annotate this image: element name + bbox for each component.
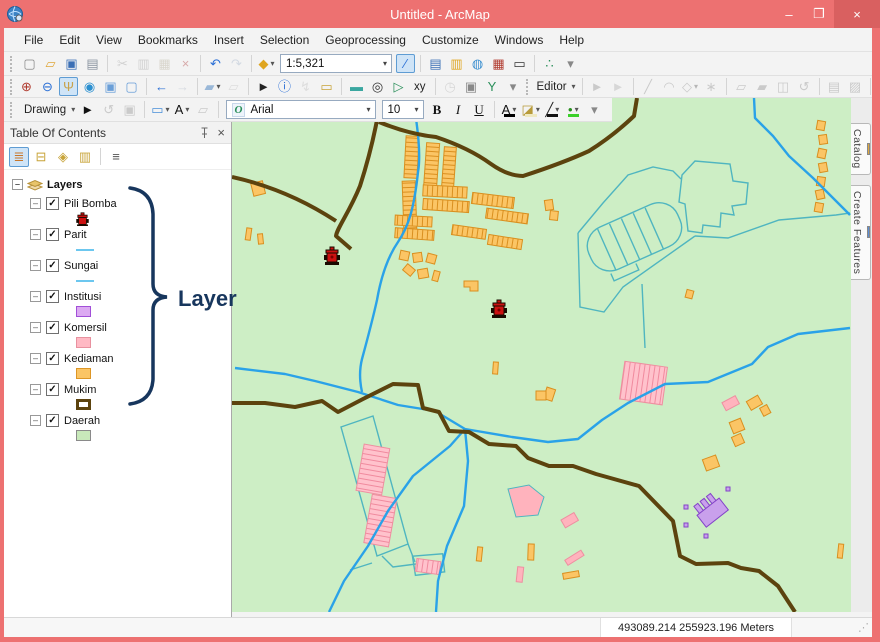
layer-symbol-parit — [76, 243, 231, 256]
toolbar-separator — [870, 78, 871, 95]
font-family-combo[interactable]: O Arial ▾ — [226, 100, 376, 119]
select-elements-tool-button[interactable]: ► — [78, 100, 97, 119]
html-popup-button[interactable]: ▭ — [317, 77, 336, 96]
table-of-contents-window-button[interactable]: ▤ — [426, 54, 445, 73]
marker-color-button[interactable]: •▾ — [564, 100, 583, 119]
modelbuilder-button[interactable]: ∴ — [540, 54, 559, 73]
go-back-extent-button[interactable]: ← — [152, 77, 171, 96]
layer-item-sungai: –✓Sungai — [30, 259, 231, 290]
chevron-down-icon: ▾ — [166, 105, 170, 114]
cut-polygons-button[interactable]: ◫ — [774, 77, 793, 96]
line-color-button[interactable]: ╱▾ — [543, 100, 562, 119]
toolbar-separator — [435, 78, 436, 95]
arcmap-window: Untitled - ArcMap – ❐ × FileEditViewBook… — [0, 0, 880, 642]
toolbar-separator — [582, 78, 583, 95]
toc-tree: – Layers –✓Pili Bomba–✓Parit–✓Sungai–✓In… — [4, 170, 231, 445]
expander-icon[interactable]: – — [30, 384, 41, 395]
side-tab-label: Catalog — [851, 129, 863, 169]
expander-icon[interactable]: – — [12, 179, 23, 190]
layer-symbol-daerah — [76, 429, 231, 442]
font-symbol-icon: O — [232, 103, 246, 117]
minimize-button[interactable]: – — [774, 0, 804, 28]
find-button[interactable]: ◎ — [368, 77, 387, 96]
color-swatch — [568, 114, 579, 117]
chevron-down-icon: ▾ — [411, 105, 423, 114]
redo-button[interactable]: ↷ — [227, 54, 246, 73]
layer-label[interactable]: Pili Bomba — [64, 198, 117, 210]
toolbar-grip[interactable] — [10, 102, 15, 118]
menu-view[interactable]: View — [88, 30, 130, 50]
layer-item-mukim: –✓Mukim — [30, 383, 231, 414]
new-text-button[interactable]: A▾ — [173, 100, 192, 119]
undo-button[interactable]: ↶ — [206, 54, 225, 73]
layer-label[interactable]: Sungai — [64, 260, 98, 272]
fill-color-button[interactable]: ◪▾ — [521, 100, 541, 119]
layers-list: –✓Pili Bomba–✓Parit–✓Sungai–✓Institusi–✓… — [30, 197, 231, 445]
window-title: Untitled - ArcMap — [0, 7, 880, 22]
new-rectangle-button[interactable]: ▭▾ — [150, 100, 170, 119]
layer-checkbox[interactable]: ✓ — [46, 259, 59, 272]
layer-item-pili-bomba: –✓Pili Bomba — [30, 197, 231, 228]
menu-geoprocessing[interactable]: Geoprocessing — [317, 30, 414, 50]
expander-icon[interactable]: – — [30, 415, 41, 426]
expander-icon[interactable]: – — [30, 229, 41, 240]
toolbar-separator — [251, 55, 252, 72]
drawing-overflow-button[interactable]: ▾ — [585, 100, 604, 119]
layer-label[interactable]: Kediaman — [64, 353, 114, 365]
menu-windows[interactable]: Windows — [487, 30, 552, 50]
toolbar-separator — [197, 78, 198, 95]
layer-checkbox[interactable]: ✓ — [46, 228, 59, 241]
menu-edit[interactable]: Edit — [51, 30, 88, 50]
layer-label[interactable]: Parit — [64, 229, 87, 241]
drawing-menu-button[interactable]: Drawing▾ — [20, 100, 76, 119]
standard-toolbar: ▢▱▣▤✂▥▦×↶↷◆▾ 1:5,321 ▾ ∕▤▥◍▦▭∴▾ — [4, 52, 872, 76]
layer-symbol-institusi — [76, 305, 231, 318]
layer-symbol-mukim — [76, 398, 231, 411]
map-scale-combo[interactable]: 1:5,321 ▾ — [280, 54, 392, 73]
bold-button[interactable]: B — [428, 100, 447, 119]
fire-hydrant-symbol — [491, 300, 507, 318]
toolbar-separator — [218, 101, 219, 118]
layer-label[interactable]: Komersil — [64, 322, 107, 334]
side-tab-create-features[interactable]: Create Features — [851, 185, 871, 280]
resize-grip[interactable]: ⋰ — [858, 621, 872, 634]
table-of-contents-panel: Table Of Contents × ≣⊟◈▥≡ – Layers –✓Pil… — [4, 122, 232, 617]
layer-label[interactable]: Daerah — [64, 415, 100, 427]
chevron-down-icon: ▾ — [379, 59, 391, 68]
zoom-in-button[interactable]: ⊕ — [17, 77, 36, 96]
measure-button[interactable]: ▬ — [347, 77, 366, 96]
layer-checkbox[interactable]: ✓ — [46, 321, 59, 334]
right-tab-strip: CatalogCreate Features — [851, 98, 872, 612]
rotate-element-button[interactable]: ↺ — [99, 100, 118, 119]
color-swatch — [547, 114, 558, 117]
toolbar-separator — [100, 148, 101, 165]
save-button[interactable]: ▣ — [62, 54, 81, 73]
layer-checkbox[interactable]: ✓ — [46, 414, 59, 427]
data-frame-icon — [27, 178, 43, 191]
zoom-out-button[interactable]: ⊖ — [38, 77, 57, 96]
time-slider-button[interactable]: ◷ — [441, 77, 460, 96]
select-elements-button[interactable]: ► — [254, 77, 273, 96]
font-family-value: Arial — [250, 104, 273, 116]
edit-tool-button[interactable]: ► — [588, 77, 607, 96]
toolbar-separator — [726, 78, 727, 95]
chevron-down-icon: ▾ — [575, 105, 579, 114]
hyperlink-button[interactable]: ↯ — [296, 77, 315, 96]
menu-help[interactable]: Help — [551, 30, 592, 50]
pin-icon[interactable] — [200, 127, 209, 139]
chevron-down-icon: ▾ — [216, 82, 220, 91]
color-swatch — [504, 114, 515, 117]
edit-vertices-button[interactable]: ▱ — [732, 77, 751, 96]
tools-toolbar: ⊕⊖Ψ◉▣▢←→▰▾▱►ⓘ↯▭▬◎▷xy◷▣Y▾ Editor▾►►╱◠◇▾∗▱… — [4, 76, 872, 98]
arctoolbox-window-button[interactable]: ▦ — [489, 54, 508, 73]
select-features-button[interactable]: ▰▾ — [203, 77, 222, 96]
expander-icon[interactable]: – — [30, 260, 41, 271]
reshape-feature-button[interactable]: ▰ — [753, 77, 772, 96]
toolbar-separator — [494, 101, 495, 118]
cut-button[interactable]: ✂ — [113, 54, 132, 73]
toolbar-separator — [633, 78, 634, 95]
edit-annotation-tool-button[interactable]: ► — [609, 77, 628, 96]
map-canvas[interactable] — [232, 98, 851, 612]
title-bar: Untitled - ArcMap – ❐ × — [0, 0, 880, 28]
menu-customize[interactable]: Customize — [414, 30, 487, 50]
list-by-source-button[interactable]: ⊟ — [31, 147, 51, 167]
rotate-tool-button[interactable]: ↺ — [795, 77, 814, 96]
list-by-drawing-order-button[interactable]: ≣ — [9, 147, 29, 167]
expander-icon[interactable]: – — [30, 353, 41, 364]
chevron-down-icon: ▾ — [536, 105, 540, 114]
layer-item-parit: –✓Parit — [30, 228, 231, 259]
python-window-button[interactable]: ▭ — [510, 54, 529, 73]
toolbar-grip[interactable] — [10, 56, 15, 72]
window-border-bottom — [0, 637, 880, 642]
point-button[interactable]: ∗ — [702, 77, 721, 96]
viewer-window-button[interactable]: ▣ — [462, 77, 481, 96]
maximize-button[interactable]: ❐ — [804, 0, 834, 28]
expander-icon[interactable]: – — [30, 198, 41, 209]
layer-checkbox[interactable]: ✓ — [46, 352, 59, 365]
layer-item-institusi: –✓Institusi — [30, 290, 231, 321]
toolbar-separator — [248, 78, 249, 95]
new-map-button[interactable]: ▢ — [20, 54, 39, 73]
chevron-down-icon: ▾ — [185, 105, 189, 114]
daerah-district-polygon — [232, 98, 851, 612]
menu-file[interactable]: File — [16, 30, 51, 50]
side-tab-label: Create Features — [851, 191, 863, 274]
toolbar-grip[interactable] — [526, 79, 528, 95]
drawing-toolbar: Drawing▾►↺▣▭▾A▾▱ O Arial ▾ 10 ▾ BIUA▾◪▾╱… — [4, 98, 612, 122]
expander-icon[interactable]: – — [30, 322, 41, 333]
side-tab-catalog-icon — [867, 143, 870, 155]
layer-symbol-pili-bomba — [76, 212, 231, 225]
fire-hydrant-symbol — [324, 247, 340, 265]
chevron-down-icon: ▾ — [555, 105, 559, 114]
toc-toolbar: ≣⊟◈▥≡ — [4, 144, 231, 170]
editor-toolbar-toggle-button[interactable]: ∕ — [396, 54, 415, 73]
print-button[interactable]: ▤ — [83, 54, 102, 73]
close-panel-icon[interactable]: × — [217, 125, 225, 140]
layer-checkbox[interactable]: ✓ — [46, 197, 59, 210]
menu-bar: FileEditViewBookmarksInsertSelectionGeop… — [4, 28, 872, 52]
go-to-xy-button[interactable]: xy — [410, 77, 430, 96]
underline-button[interactable]: U — [470, 100, 489, 119]
fixed-zoom-out-button[interactable]: ▢ — [122, 77, 141, 96]
italic-button[interactable]: I — [449, 100, 468, 119]
window-border-left — [0, 28, 4, 642]
status-bar: 493089.214 255923.196 Meters ⋰ — [4, 617, 872, 637]
hydrant-symbol-icon — [76, 212, 89, 226]
layer-label[interactable]: Institusi — [64, 291, 101, 303]
attributes-button[interactable]: ▤ — [825, 77, 844, 96]
layer-label[interactable]: Mukim — [64, 384, 96, 396]
toolbar-separator — [144, 101, 145, 118]
map-scale-value: 1:5,321 — [286, 58, 324, 70]
catalog-window-button[interactable]: ▥ — [447, 54, 466, 73]
sketch-properties-button[interactable]: ▨ — [846, 77, 865, 96]
menu-insert[interactable]: Insert — [206, 30, 252, 50]
layers-root-label: Layers — [47, 179, 82, 191]
chevron-down-icon: ▾ — [363, 105, 375, 114]
identify-button[interactable]: ⓘ — [275, 77, 294, 96]
font-size-value: 10 — [388, 104, 401, 116]
toolbar-grip[interactable] — [10, 79, 12, 95]
layer-checkbox[interactable]: ✓ — [46, 383, 59, 396]
tools-overflow-button[interactable]: ▾ — [504, 77, 523, 96]
straight-segment-button[interactable]: ╱ — [639, 77, 658, 96]
layers-root[interactable]: – Layers — [12, 178, 231, 191]
trace-button[interactable]: ◇▾ — [681, 77, 700, 96]
chevron-down-icon: ▾ — [270, 59, 274, 68]
layer-item-komersil: –✓Komersil — [30, 321, 231, 352]
layer-symbol-komersil — [76, 336, 231, 349]
list-by-visibility-button[interactable]: ◈ — [53, 147, 73, 167]
layer-item-daerah: –✓Daerah — [30, 414, 231, 445]
menu-selection[interactable]: Selection — [252, 30, 317, 50]
chevron-down-icon: ▾ — [694, 82, 698, 91]
zoom-to-selected-button[interactable]: ▣ — [120, 100, 139, 119]
layer-item-kediaman: –✓Kediaman — [30, 352, 231, 383]
layer-symbol-kediaman — [76, 367, 231, 380]
coordinate-readout: 493089.214 255923.196 Meters — [600, 618, 792, 637]
endpoint-arc-button[interactable]: ◠ — [660, 77, 679, 96]
pan-button[interactable]: Ψ — [59, 77, 78, 96]
search-window-button[interactable]: ◍ — [468, 54, 487, 73]
toolbar-separator — [146, 78, 147, 95]
chevron-down-icon: ▾ — [572, 82, 576, 91]
toolbar-separator — [200, 55, 201, 72]
toc-header: Table Of Contents × — [4, 122, 231, 144]
full-extent-button[interactable]: ◉ — [80, 77, 99, 96]
paste-button[interactable]: ▦ — [155, 54, 174, 73]
close-button[interactable]: × — [834, 0, 880, 28]
list-by-selection-button[interactable]: ▥ — [75, 147, 95, 167]
side-tab-catalog[interactable]: Catalog — [851, 123, 871, 175]
layer-symbol-sungai — [76, 274, 231, 287]
font-color-button[interactable]: A▾ — [500, 100, 519, 119]
add-data-button[interactable]: ◆▾ — [257, 54, 276, 73]
toolbar-separator — [341, 78, 342, 95]
chevron-down-icon: ▾ — [71, 105, 75, 114]
delete-button[interactable]: × — [176, 54, 195, 73]
expander-icon[interactable]: – — [30, 291, 41, 302]
toolbar-separator — [107, 55, 108, 72]
find-route-button[interactable]: ▷ — [389, 77, 408, 96]
menu-bookmarks[interactable]: Bookmarks — [130, 30, 206, 50]
toolbar-separator — [819, 78, 820, 95]
walk-button[interactable]: Y — [483, 77, 502, 96]
go-forward-extent-button[interactable]: → — [173, 77, 192, 96]
window-border-right — [872, 28, 880, 642]
copy-button[interactable]: ▥ — [134, 54, 153, 73]
toolbar-separator — [534, 55, 535, 72]
font-size-combo[interactable]: 10 ▾ — [382, 100, 424, 119]
side-tab-create-features-icon — [867, 226, 870, 238]
toolbar-overflow-button[interactable]: ▾ — [561, 54, 580, 73]
open-button[interactable]: ▱ — [41, 54, 60, 73]
fixed-zoom-in-button[interactable]: ▣ — [101, 77, 120, 96]
toolbar-separator — [420, 55, 421, 72]
toc-title: Table Of Contents — [10, 126, 106, 140]
toc-options-button[interactable]: ≡ — [106, 147, 126, 167]
clear-selected-features-button[interactable]: ▱ — [224, 77, 243, 96]
edit-vertices-drawing-button[interactable]: ▱ — [194, 100, 213, 119]
color-swatch — [525, 114, 537, 117]
editor-menu-button[interactable]: Editor▾ — [533, 77, 577, 96]
layer-checkbox[interactable]: ✓ — [46, 290, 59, 303]
chevron-down-icon: ▾ — [512, 105, 516, 114]
